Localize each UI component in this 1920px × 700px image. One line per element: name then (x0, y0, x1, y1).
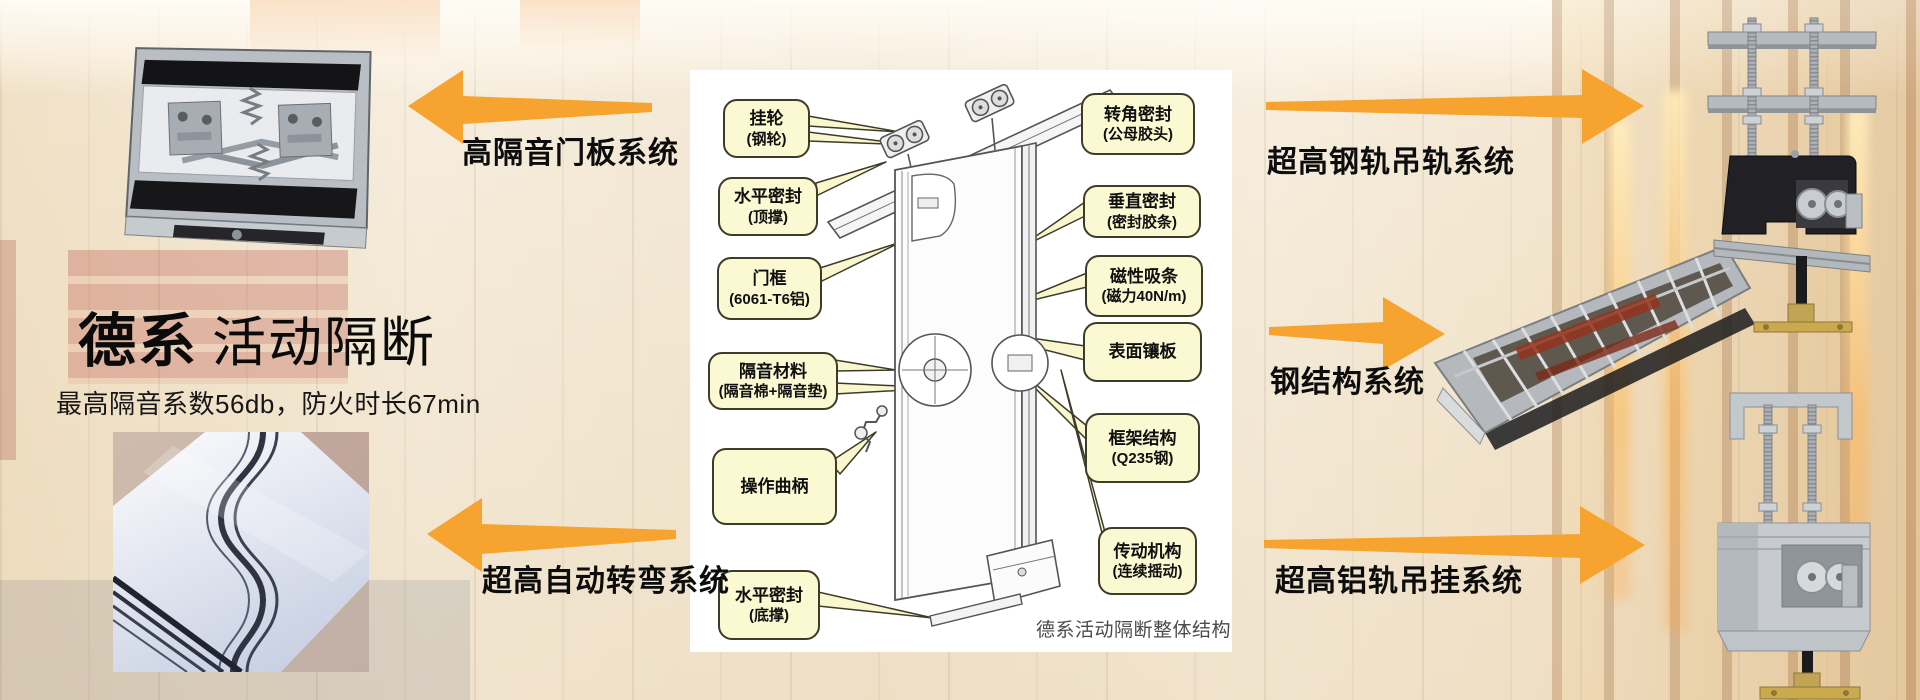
callout-text: (钢轮) (747, 130, 787, 149)
callout-operating-crank: 操作曲柄 (712, 448, 837, 525)
callout-door-frame: 门框 (6061-T6铝) (717, 257, 822, 320)
label-auto-turn-system: 超高自动转弯系统 (482, 556, 730, 600)
callout-text: (底撑) (749, 606, 789, 625)
callout-vertical-seal: 垂直密封 (密封胶条) (1083, 185, 1201, 238)
callout-text: (Q235钢) (1112, 449, 1174, 468)
steel-rail-hanger-photo (1700, 4, 1885, 334)
callout-text: 磁性吸条 (1110, 266, 1178, 288)
callout-horizontal-seal-top: 水平密封 (顶撑) (718, 177, 818, 236)
callout-acoustic-material: 隔音材料 (隔音棉+隔音垫) (708, 352, 838, 410)
callout-hanging-wheel: 挂轮 (钢轮) (723, 99, 810, 158)
callout-surface-panel: 表面镶板 (1083, 322, 1202, 382)
diagram-caption: 德系活动隔断整体结构 (1036, 615, 1231, 642)
callout-text: 框架结构 (1109, 428, 1177, 450)
callout-magnetic-strip: 磁性吸条 (磁力40N/m) (1085, 255, 1203, 317)
callout-text: 水平密封 (734, 186, 802, 208)
product-name: 活动隔断 (212, 298, 436, 377)
page-title: 德系 活动隔断 (78, 294, 436, 378)
callout-text: 挂轮 (750, 108, 784, 130)
door-panel-photo (108, 21, 407, 283)
callout-text: 转角密封 (1104, 104, 1172, 126)
aluminum-rail-hanger-photo (1690, 385, 1885, 700)
callout-drive-mechanism: 传动机构 (连续摇动) (1098, 527, 1197, 595)
callout-text: 水平密封 (735, 585, 803, 607)
label-steel-rail-system: 超高钢轨吊轨系统 (1267, 137, 1515, 181)
label-alu-rail-system: 超高铝轨吊挂系统 (1275, 556, 1523, 600)
callout-text: 操作曲柄 (741, 476, 809, 498)
callout-text: (密封胶条) (1107, 213, 1177, 232)
subtitle: 最高隔音系数56db，防火时长67min (56, 384, 481, 421)
callout-text: (连续摇动) (1113, 562, 1183, 581)
callout-corner-seal: 转角密封 (公母胶头) (1081, 93, 1195, 155)
callout-text: 门框 (753, 268, 787, 290)
label-steel-structure-system: 钢结构系统 (1270, 357, 1425, 401)
red-wall-edge (0, 240, 16, 460)
slide-canvas: 高隔音门板系统 超高自动转弯系统 超高钢轨吊轨系统 钢结构系统 超高铝轨吊挂系统… (0, 0, 1920, 700)
callout-text: 表面镶板 (1109, 341, 1177, 363)
callout-horizontal-seal-bottom: 水平密封 (底撑) (718, 570, 820, 640)
callout-text: 传动机构 (1114, 541, 1182, 563)
callout-text: (磁力40N/m) (1101, 287, 1186, 306)
ceiling-patch (520, 0, 640, 50)
callout-text: 隔音材料 (739, 361, 807, 383)
callout-text: 垂直密封 (1108, 191, 1176, 213)
structure-diagram-panel: 挂轮 (钢轮) 水平密封 (顶撑) 门框 (6061-T6铝) 隔音材料 (隔音… (690, 70, 1232, 652)
callout-frame-structure: 框架结构 (Q235钢) (1085, 413, 1200, 483)
brand-name: 德系 (78, 294, 198, 378)
callout-text: (6061-T6铝) (729, 290, 810, 309)
callout-text: (公母胶头) (1103, 125, 1173, 144)
label-door-panel-system: 高隔音门板系统 (462, 128, 679, 172)
curved-track-photo (113, 432, 369, 672)
callout-text: (顶撑) (748, 208, 788, 227)
callout-text: (隔音棉+隔音垫) (719, 382, 828, 401)
